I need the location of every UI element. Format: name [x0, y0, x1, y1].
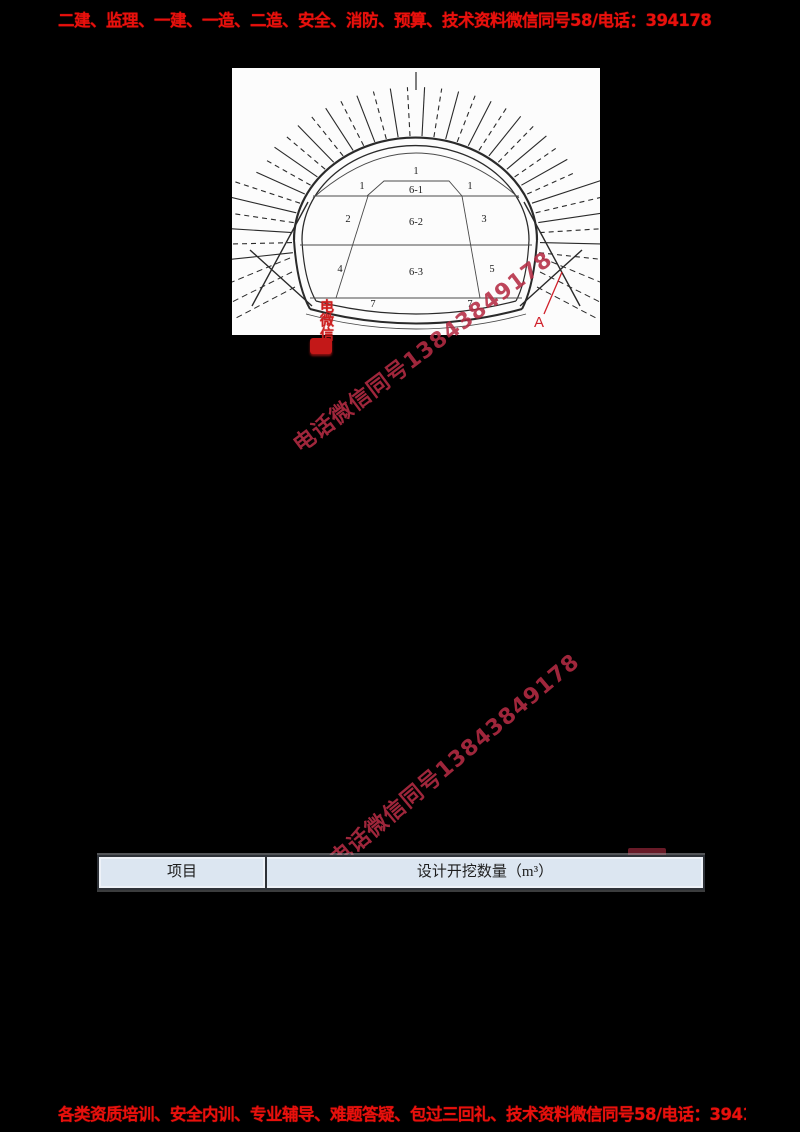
rock-bolt-line	[232, 228, 292, 233]
tunnel-cross-section-drawing: 1 1 6-1 1 2 6-2 3 4 6-3 5 7 7 A	[232, 68, 600, 335]
left-haunch-bolt-dashed-3	[236, 287, 295, 318]
rock-bolt-line	[232, 253, 293, 261]
rock-bolt-line	[446, 92, 459, 140]
rock-bolt-line	[286, 136, 326, 169]
rock-bolt-line	[479, 108, 506, 150]
rock-bolt-line	[232, 211, 294, 222]
left-outer-wall	[294, 240, 310, 309]
rock-bolt-line	[390, 89, 398, 138]
rock-bolt-line	[341, 101, 364, 145]
right-column-slant	[462, 196, 480, 298]
rock-bolt-line	[275, 147, 318, 177]
section-label-core-top: 6-1	[409, 185, 423, 196]
rock-bolt-line	[540, 228, 600, 233]
section-label-mid-right: 3	[481, 214, 486, 225]
rock-bolt-line	[232, 243, 292, 245]
rock-bolt-line	[357, 96, 375, 142]
section-label-core-low: 6-3	[409, 267, 423, 278]
rock-bolt-line	[536, 195, 600, 213]
rock-bolt-line	[232, 195, 296, 213]
section-label-mid-left: 2	[345, 214, 350, 225]
section-label-core-mid: 6-2	[409, 217, 423, 228]
left-column-slant	[336, 196, 368, 298]
left-haunch-bolt-dashed-2	[232, 272, 292, 302]
section-label-crown: 1	[413, 166, 418, 177]
right-haunch-bolt-dashed-3	[537, 287, 596, 318]
rock-bolt-line	[498, 126, 534, 163]
tunnel-diagram-panel: 1 1 6-1 1 2 6-2 3 4 6-3 5 7 7 A	[232, 68, 600, 335]
right-haunch-bolt-dashed-2	[540, 272, 600, 302]
red-stamp-seal	[310, 338, 332, 354]
rock-bolt-line	[265, 159, 311, 185]
rock-bolt-line	[457, 96, 475, 142]
rock-bolt-line	[298, 126, 334, 163]
rock-bolt-line	[468, 101, 491, 145]
excavation-quantity-table: 项目 设计开挖数量（m³）	[97, 855, 705, 890]
rock-bolt-line	[373, 92, 386, 140]
marker-a-label: A	[534, 314, 544, 331]
rock-bolt-line	[311, 116, 343, 156]
section-label-low-right: 5	[489, 264, 494, 275]
section-label-upper-right: 1	[467, 181, 472, 192]
rock-bolt-line	[515, 147, 558, 177]
table-header-design-quantity: 设计开挖数量（m³）	[267, 857, 703, 888]
bottom-ad-banner: 各类资质培训、安全内训、专业辅导、难题答疑、包过三回礼、技术资料微信同号58/电…	[58, 1101, 746, 1125]
rock-bolt-line	[540, 243, 600, 245]
rock-bolt-line	[407, 87, 410, 136]
rock-bolt-line	[521, 159, 567, 185]
section-label-low-left: 4	[337, 264, 343, 275]
rock-bolt-line	[434, 89, 442, 138]
rock-bolt-line	[538, 211, 600, 222]
table-header-item: 项目	[99, 857, 267, 888]
top-ad-banner: 二建、监理、一建、一造、二造、安全、消防、预算、技术资料微信同号58/电话：39…	[58, 7, 746, 31]
diagonal-watermark-2: 电话微信同号13843849178	[322, 645, 586, 874]
rock-bolt-line	[507, 136, 547, 169]
section-label-invert-left: 7	[370, 299, 375, 310]
rock-bolt-line	[326, 108, 353, 150]
rock-bolt-line	[422, 87, 425, 136]
section-label-upper-left: 1	[359, 181, 364, 192]
rock-bolt-line	[489, 116, 521, 156]
